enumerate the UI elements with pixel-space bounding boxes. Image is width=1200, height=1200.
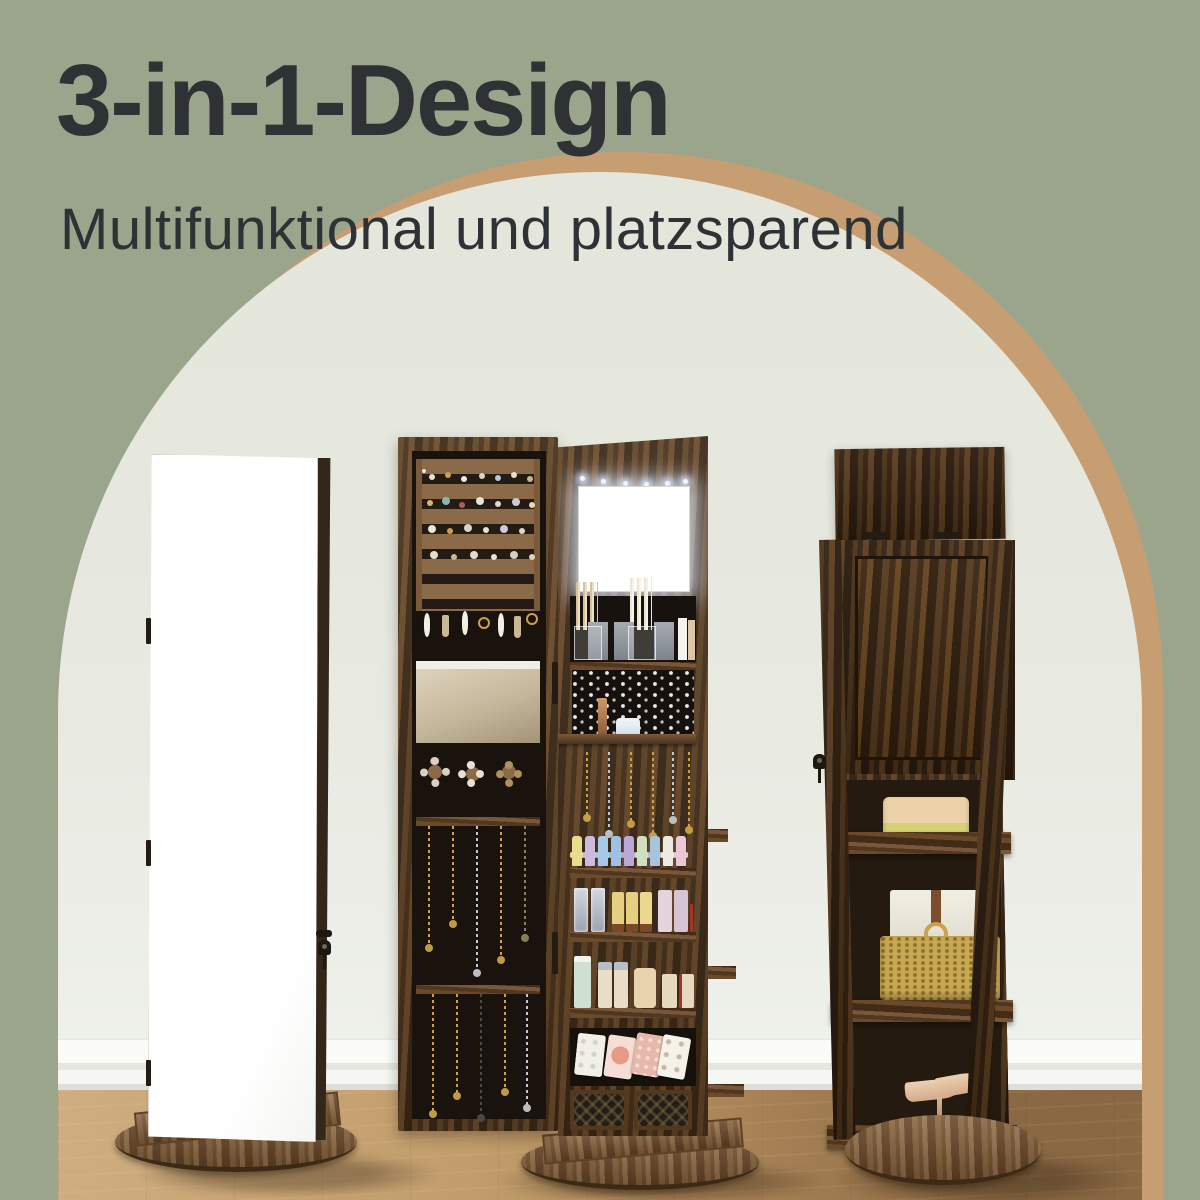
pink-roll — [674, 890, 688, 932]
shelf — [570, 868, 696, 878]
banner-title: 3-in-1-Design — [56, 44, 670, 159]
necklace-chain — [452, 826, 454, 922]
red-stick — [690, 904, 693, 932]
pink-roll — [658, 890, 672, 932]
lipstick-holder — [598, 836, 608, 866]
open-door — [398, 437, 558, 1131]
lipstick-holder — [663, 836, 673, 866]
pearl-bracelet — [458, 761, 484, 787]
arch-window — [58, 172, 1142, 1200]
beige-box — [688, 620, 695, 660]
shelf — [570, 932, 696, 942]
banner-subtitle: Multifunktional und platzsparend — [60, 196, 908, 263]
drawer — [570, 1090, 628, 1130]
lipstick-holder — [585, 836, 595, 866]
shelf — [570, 1008, 696, 1018]
glitter-bottle — [591, 888, 605, 932]
necklace-chain — [630, 752, 632, 822]
feather-earring — [462, 611, 468, 635]
makeup-palette — [574, 1033, 606, 1078]
necklace-chain — [432, 994, 434, 1112]
necklace-chain — [480, 994, 482, 1116]
dangle-earrings — [416, 611, 540, 659]
tassel-earring — [442, 615, 449, 637]
product-banner: 3-in-1-Design Multifunktional und platzs… — [0, 0, 1200, 1200]
hinge — [146, 618, 151, 644]
hinge — [146, 1060, 151, 1086]
product-cabinet-rear — [813, 444, 1063, 1188]
back-top-board — [834, 447, 1005, 541]
necklace-chain — [456, 994, 458, 1094]
lipstick-holder — [637, 836, 647, 866]
led-lights — [580, 476, 585, 481]
necklace-chain — [428, 826, 430, 946]
door-mirror — [416, 669, 540, 743]
swivel-base — [845, 1115, 1041, 1185]
necklace-chain — [524, 826, 526, 936]
recessed-panel — [855, 556, 989, 760]
necklace-chain — [476, 826, 478, 971]
cream-bottle — [614, 962, 628, 1008]
cabinet-body — [558, 436, 708, 1136]
hook-rail — [416, 817, 540, 826]
necklace-chain — [526, 994, 528, 1106]
lipstick-holder — [650, 836, 660, 866]
acrylic-box — [574, 626, 602, 660]
gold-box — [612, 892, 624, 932]
product-mirror-cabinet-front — [113, 450, 413, 1190]
hoop-earring — [526, 613, 538, 625]
cream-bottle — [598, 962, 612, 1008]
necklace-chain — [608, 752, 610, 832]
metal-cup — [654, 622, 674, 660]
hook-rail — [416, 985, 540, 994]
glitter-bottle — [574, 888, 588, 932]
scrunchie — [420, 757, 450, 787]
interior-mirror — [578, 486, 690, 592]
key-stem — [818, 768, 821, 783]
white-box — [678, 618, 687, 660]
gold-box — [640, 892, 652, 932]
earring-studs — [422, 469, 426, 473]
lipstick-holder — [572, 836, 582, 866]
lipstick-holder — [676, 836, 686, 866]
lipstick-holder — [611, 836, 621, 866]
tassel-earring — [514, 616, 521, 638]
feather-earring — [498, 613, 504, 637]
lace-box — [679, 974, 694, 1008]
hinge — [146, 840, 151, 866]
hinge — [861, 532, 887, 539]
necklace-chain — [652, 752, 654, 834]
wood-strip — [570, 662, 696, 670]
box-strap — [931, 890, 941, 924]
hoop-earring — [478, 617, 490, 629]
perfume-bottle — [634, 968, 656, 1008]
lock — [316, 930, 332, 937]
hinge — [933, 532, 959, 539]
key-icon — [813, 754, 826, 769]
earring-organizer — [416, 459, 540, 611]
perfume-cylinder — [598, 698, 607, 736]
gold-box — [626, 892, 638, 932]
scrunchie — [496, 761, 522, 787]
necklace-chain — [500, 826, 502, 958]
key-icon — [318, 940, 331, 955]
lipstick-holder — [624, 836, 634, 866]
lace-box — [662, 974, 677, 1008]
necklace-chain — [672, 752, 674, 818]
necklace-chain — [688, 752, 690, 828]
mirror-door — [148, 454, 318, 1142]
feather-earring — [424, 613, 430, 637]
mint-bottle — [574, 956, 591, 1008]
necklace-chain — [504, 994, 506, 1090]
drawer — [634, 1090, 692, 1130]
key-stem — [323, 954, 326, 969]
door-shelf-strip — [416, 661, 540, 669]
product-jewelry-cabinet-open — [393, 434, 765, 1196]
necklace-chain — [586, 752, 588, 816]
acrylic-box — [628, 626, 656, 660]
